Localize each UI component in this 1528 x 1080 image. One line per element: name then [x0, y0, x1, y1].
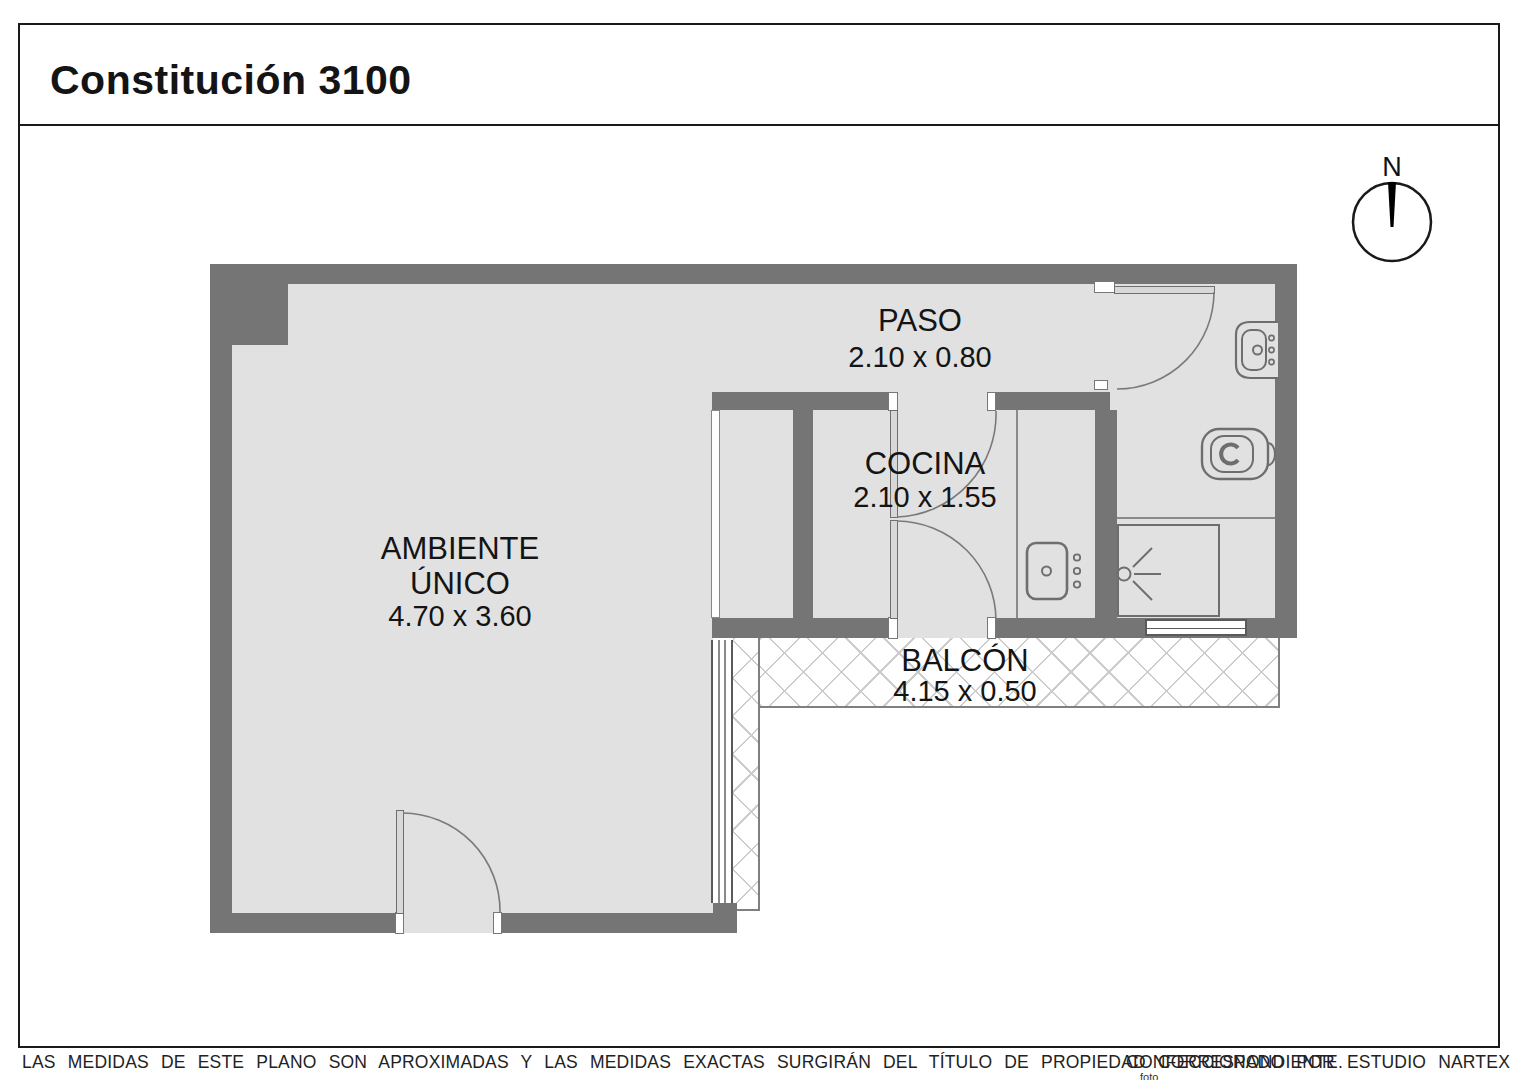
room-label-ambiente-line2: ÚNICO [360, 566, 560, 602]
cocina-bottom-jamb-right [987, 617, 996, 639]
wall-closet-mid [793, 410, 813, 618]
room-label-ambiente-line1: AMBIENTE [360, 531, 560, 567]
cocina-top-jamb-right [987, 392, 996, 411]
room-label-paso: PASO [820, 303, 1020, 339]
floor-plan-page: Constitución 3100 N [0, 0, 1528, 1080]
room-dims-ambiente: 4.70 x 3.60 [360, 600, 560, 633]
cocina-bottom-jamb-left [888, 617, 898, 639]
entry-door-jamb-right [493, 912, 502, 934]
room-dims-paso: 2.10 x 0.80 [820, 341, 1020, 374]
cocina-top-jamb-left [888, 392, 898, 411]
compass-north-label: N [1377, 152, 1407, 183]
cocina-lower-door-leaf [890, 520, 898, 619]
window-pane-line [718, 640, 720, 903]
entry-door-jamb-left [395, 912, 404, 934]
entry-door-opening [397, 913, 501, 933]
wall-closet-bottom [712, 618, 890, 638]
wall-kitchen-bottom [995, 618, 1095, 638]
closet-front-panel [711, 410, 720, 618]
balcony-window [711, 640, 733, 903]
bath-window [1145, 619, 1247, 636]
room-label-cocina: COCINA [825, 446, 1025, 482]
window-pane-line [724, 640, 726, 903]
room-dims-balcon: 4.15 x 0.50 [865, 675, 1065, 708]
wall-bottom-left [210, 913, 397, 933]
bath-window-mullion [1147, 628, 1245, 630]
kitchen-counter-edge [1016, 410, 1018, 618]
bath-door-jamb-bottom [1094, 380, 1108, 390]
bath-door-jamb-top [1094, 281, 1115, 293]
wall-top [210, 264, 1297, 284]
footer-tiny-note: foto [1140, 1071, 1158, 1080]
wall-left [210, 264, 232, 933]
wall-right [1275, 264, 1297, 638]
shower-tray [1117, 524, 1220, 617]
wall-kitchen-top [995, 392, 1110, 410]
wall-bottom-right [501, 913, 737, 933]
bath-door-leaf [1114, 286, 1215, 294]
page-title: Constitución 3100 [50, 57, 412, 104]
wall-kitchen-bath [1095, 410, 1117, 638]
balcony-hatch-vertical [733, 638, 760, 911]
floor-living [232, 638, 713, 913]
room-dims-cocina: 2.10 x 1.55 [825, 481, 1025, 514]
wall-living-corner-block [713, 903, 737, 933]
bath-shower-divider [1117, 517, 1275, 519]
footer-credit: CONFECCIONADO POR ESTUDIO NARTEX [1126, 1052, 1510, 1073]
wall-closet-top [712, 392, 890, 410]
room-label-balcon: BALCÓN [865, 643, 1065, 679]
entry-door-leaf [396, 810, 404, 914]
